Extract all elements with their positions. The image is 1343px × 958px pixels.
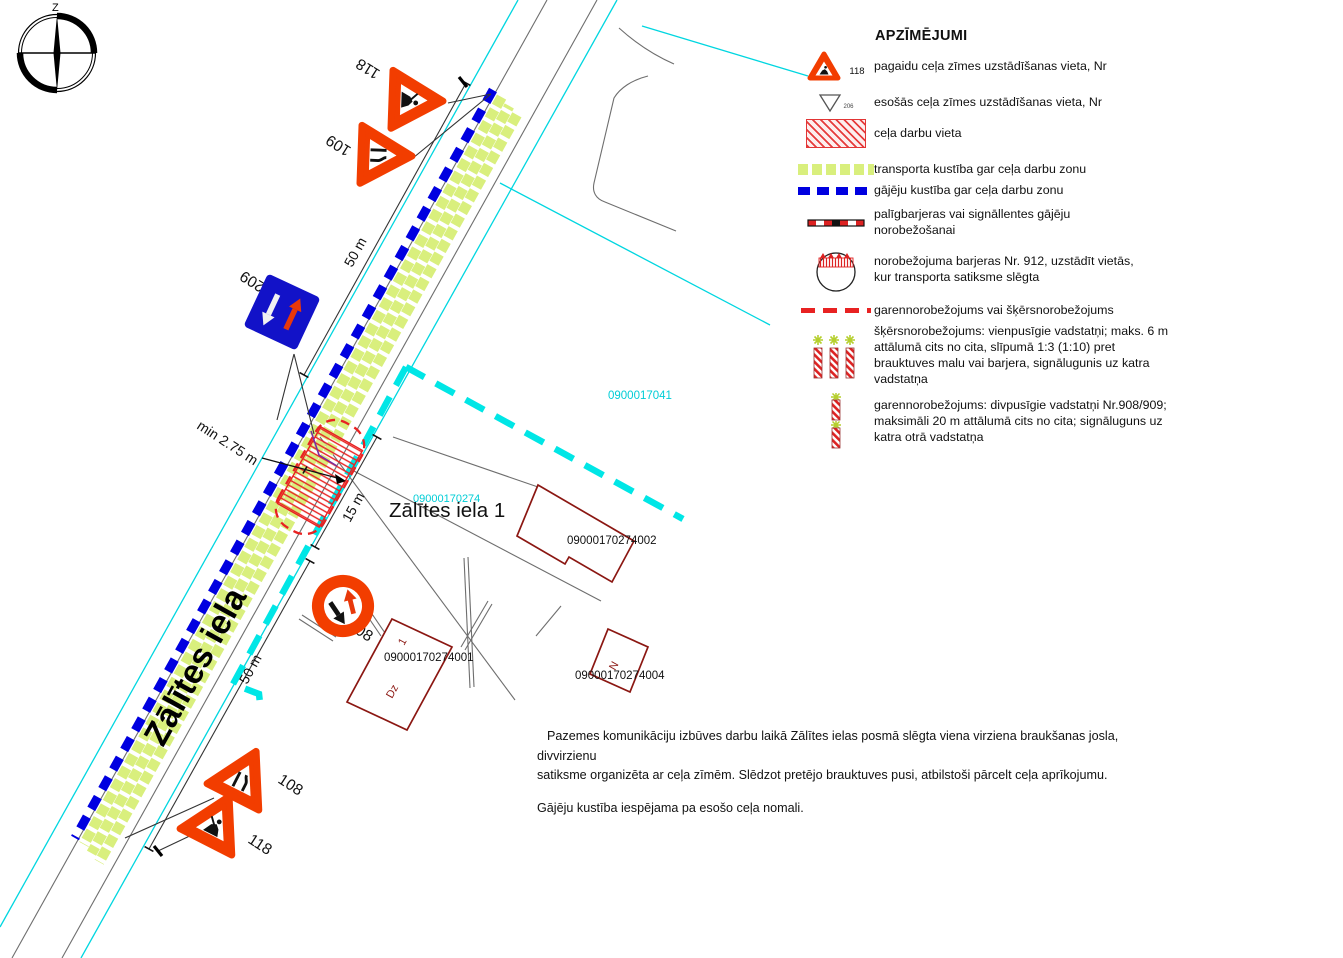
parcel-number-p1: 0900017041 [608, 390, 672, 402]
work-area-icon [806, 119, 866, 148]
existing-sign-icon [818, 93, 842, 113]
aux-barrier-icon [804, 218, 868, 228]
legend-label: šķērsnorobežojums: vienpusīgie vadstatņi… [874, 324, 1168, 388]
legend-item-transport-route: transporta kustība gar ceļa darbu zonu [798, 162, 1238, 178]
legend-item-existing-sign: 206 esošās ceļa zīmes uzstādīšanas vieta… [798, 93, 1238, 113]
pedestrian-route-icon [798, 187, 874, 196]
legend-label: esošās ceļa zīmes uzstādīšanas vieta, Nr [874, 95, 1102, 111]
legend-item-temp-sign: 118 pagaidu ceļa zīmes uzstādīšanas viet… [798, 50, 1238, 83]
existing-sign-number: 206 [843, 104, 853, 110]
dim-50m-bottom-label: 50 m [236, 651, 265, 686]
legend-label: ceļa darbu vieta [874, 126, 961, 142]
building-001-type: Dz [384, 683, 401, 701]
legend-item-barrier-912: norobežojuma barjeras Nr. 912, uzstādīt … [798, 247, 1238, 293]
notes-block: Pazemes komunikāciju izbūves darbu laikā… [537, 727, 1137, 818]
legend-title: APZĪMĒJUMI [875, 28, 1238, 44]
sign-108-label: 108 [275, 771, 306, 799]
legend-label: pagaidu ceļa zīmes uzstādīšanas vieta, N… [874, 59, 1107, 75]
legend-item-pedestrian-route: gājēju kustība gar ceļa darbu zonu [798, 183, 1238, 199]
sign-118-bottom-label: 118 [245, 831, 275, 859]
temp-sign-number: 118 [849, 66, 864, 77]
parcel-number-p2: 09000170274 [413, 493, 480, 505]
legend-label: gājēju kustība gar ceļa darbu zonu [874, 183, 1063, 199]
building-001-number: 1 [396, 636, 409, 647]
legend-label: garennorobežojums vai šķērsnorobežojums [874, 303, 1114, 319]
legend-item-longitudinal: garennorobežojums vai šķērsnorobežojums [798, 303, 1238, 319]
legend-item-long-posts: garennorobežojums: divpusīgie vadstatņi … [798, 392, 1238, 452]
legend-item-aux-barrier: palīgbarjeras vai signāllentes gājēju no… [798, 207, 1238, 239]
sign-118-top [391, 70, 444, 130]
compass-rose: Z [19, 2, 96, 92]
legend-label: palīgbarjeras vai signāllentes gājēju no… [874, 207, 1070, 239]
building-004-outline [590, 629, 648, 692]
parcel-number-b1: 09000170274001 [384, 652, 474, 664]
legend-label: transporta kustība gar ceļa darbu zonu [874, 162, 1086, 178]
longitudinal-barrier-icon [801, 308, 871, 313]
street-name-label: Zālītes iela [137, 580, 255, 751]
long-posts-icon [825, 392, 847, 452]
building-002-outline [517, 485, 634, 582]
compass-north-label: Z [52, 2, 59, 14]
compass-needle [54, 15, 61, 91]
sign-109-label: 109 [323, 131, 354, 159]
dim-min-width-label: min 2.75 m [194, 417, 261, 468]
barrier-912-icon [813, 247, 859, 293]
note-paragraph-1: Pazemes komunikāciju izbūves darbu laikā… [537, 727, 1137, 786]
temp-sign-icon [807, 50, 845, 83]
transport-route-icon [798, 164, 874, 175]
parcel-number-b2: 09000170274002 [567, 535, 657, 547]
legend-label: norobežojuma barjeras Nr. 912, uzstādīt … [874, 254, 1134, 286]
legend-label: garennorobežojums: divpusīgie vadstatņi … [874, 398, 1167, 446]
legend-item-work-area: ceļa darbu vieta [798, 119, 1238, 148]
note-paragraph-2: Gājēju kustība iespējama pa esošo ceļa n… [537, 799, 1137, 819]
cross-posts-icon [809, 330, 863, 382]
parcel-number-b4: 09000170274004 [575, 670, 665, 682]
sign-118-top-label: 118 [353, 55, 383, 83]
sign-109 [360, 125, 413, 185]
traffic-plan-sheet: Zālītes iela Zālītes iela 1 0900017041 0… [0, 0, 1343, 958]
sign-108 [207, 738, 282, 810]
legend-item-cross-posts: šķērsnorobežojums: vienpusīgie vadstatņi… [798, 324, 1238, 388]
legend: APZĪMĒJUMI 118 pagaidu ceļa zīmes uzstād… [798, 28, 1238, 452]
